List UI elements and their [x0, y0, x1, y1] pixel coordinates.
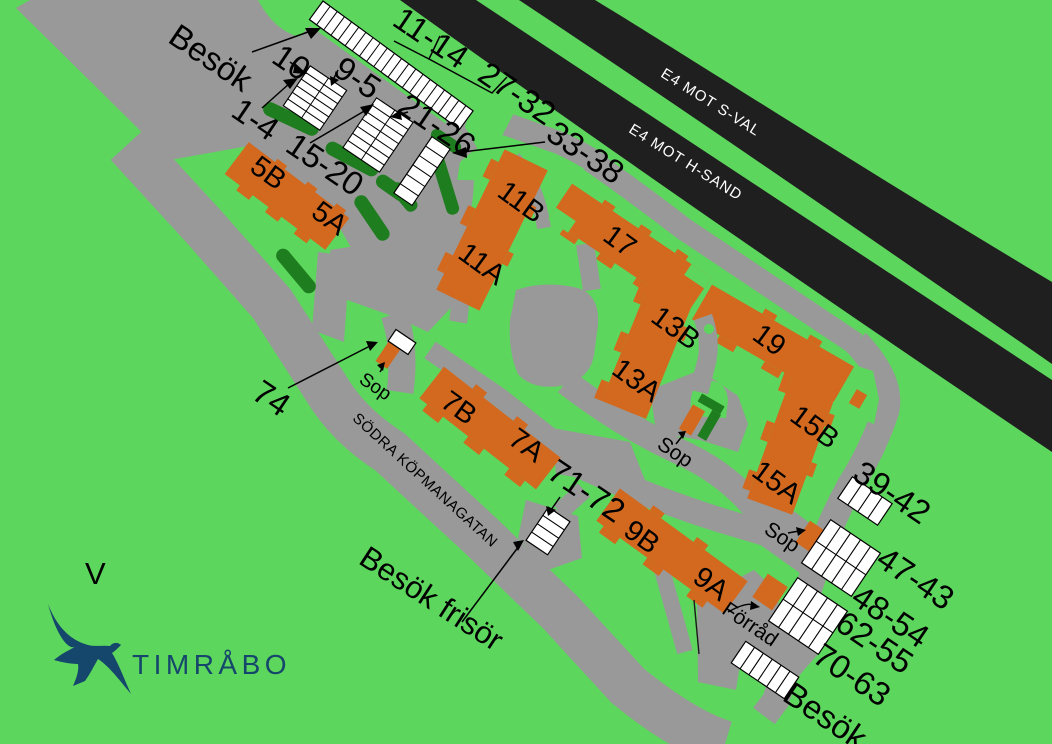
svg-text:TIMRÅBO: TIMRÅBO — [132, 649, 291, 680]
svg-text:V: V — [85, 556, 106, 591]
